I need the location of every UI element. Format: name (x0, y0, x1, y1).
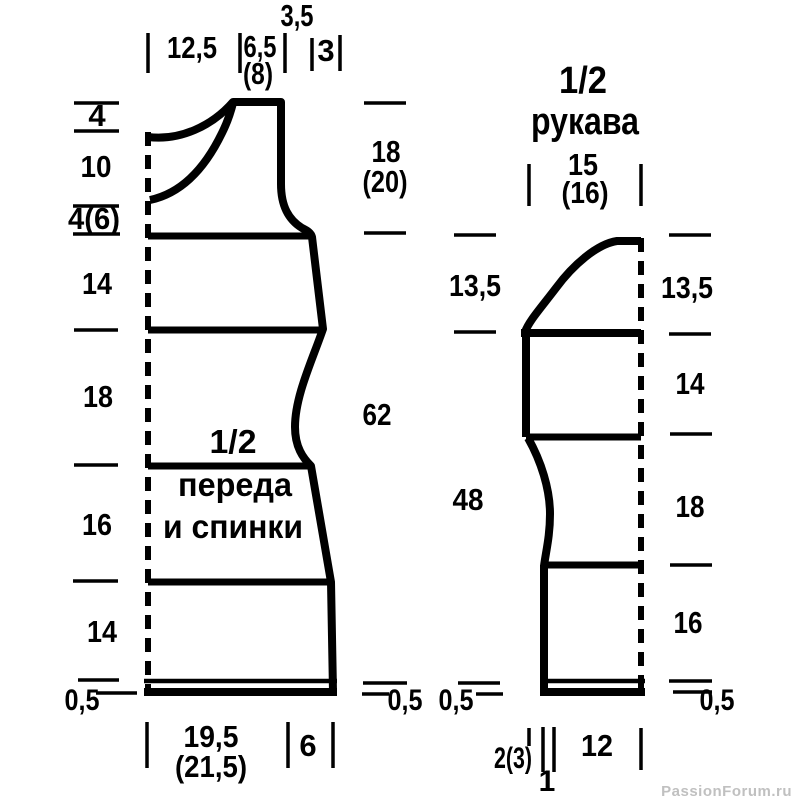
body-piece-title-line1: 1/2 (210, 423, 257, 460)
sleeve-piece: 1/2 рукава 15 (16) 13,5 48 0,5 13,5 14 1… (439, 60, 735, 798)
body-piece-title-line2: переда (178, 466, 293, 503)
sleeve-cap-height-left-label: 13,5 (449, 268, 501, 303)
body-front-neck-drop-label: 10 (81, 149, 112, 184)
pattern-diagram-page: 12,5 6,5 (8) 3,5 3 4 10 4(6) 14 18 16 14… (0, 0, 800, 800)
sleeve-left-edge-curve (528, 438, 550, 566)
body-total-length-label: 62 (363, 397, 392, 432)
body-neck-width-alt-label: (8) (243, 56, 273, 91)
sleeve-seam-label: 1 (539, 765, 556, 798)
body-armhole-step-label: 3 (317, 33, 334, 68)
body-back-neck-drop-label: 4 (88, 98, 106, 133)
body-armhole-straight-label: 4(6) (68, 201, 120, 236)
body-piece: 12,5 6,5 (8) 3,5 3 4 10 4(6) 14 18 16 14… (65, 0, 423, 784)
sleeve-hem-right-label: 0,5 (700, 684, 735, 717)
sleeve-cap-width-alt-label: (16) (562, 175, 609, 210)
body-waist-section-label: 18 (83, 379, 113, 414)
body-half-width-alt-label: (21,5) (175, 749, 247, 784)
body-armhole-depth-alt-label: (20) (363, 164, 408, 199)
body-hem-left-label: 0,5 (65, 684, 100, 717)
sleeve-underarm-length-label: 48 (453, 482, 484, 517)
sleeve-cap-outline (525, 241, 641, 332)
body-piece-title-line3: и спинки (163, 508, 303, 545)
sleeve-cuff-section-label: 16 (674, 605, 703, 640)
body-upper-side-label: 14 (82, 266, 113, 301)
sleeve-cuff-width-label: 12 (581, 728, 613, 763)
sleeve-cap-height-right-label: 13,5 (661, 270, 713, 305)
body-hem-right-label: 0,5 (388, 684, 423, 717)
sleeve-piece-title-line2: рукава (531, 101, 640, 143)
body-lower-section-label: 14 (87, 614, 118, 649)
knitting-pattern-schematic: 12,5 6,5 (8) 3,5 3 4 10 4(6) 14 18 16 14… (0, 0, 800, 800)
sleeve-upper-section-label: 14 (676, 366, 706, 401)
watermark-text: PassionForum.ru (661, 783, 792, 800)
sleeve-hem-left-label: 0,5 (439, 684, 474, 717)
body-neck-slope-label: 3,5 (281, 0, 314, 33)
body-hip-section-label: 16 (82, 507, 112, 542)
body-shoulder-width-label: 12,5 (167, 30, 217, 65)
body-flare-label: 6 (299, 728, 316, 763)
sleeve-piece-title-line1: 1/2 (559, 60, 607, 102)
sleeve-mid-section-label: 18 (676, 489, 705, 524)
sleeve-decrease-label: 2(3) (494, 742, 532, 775)
